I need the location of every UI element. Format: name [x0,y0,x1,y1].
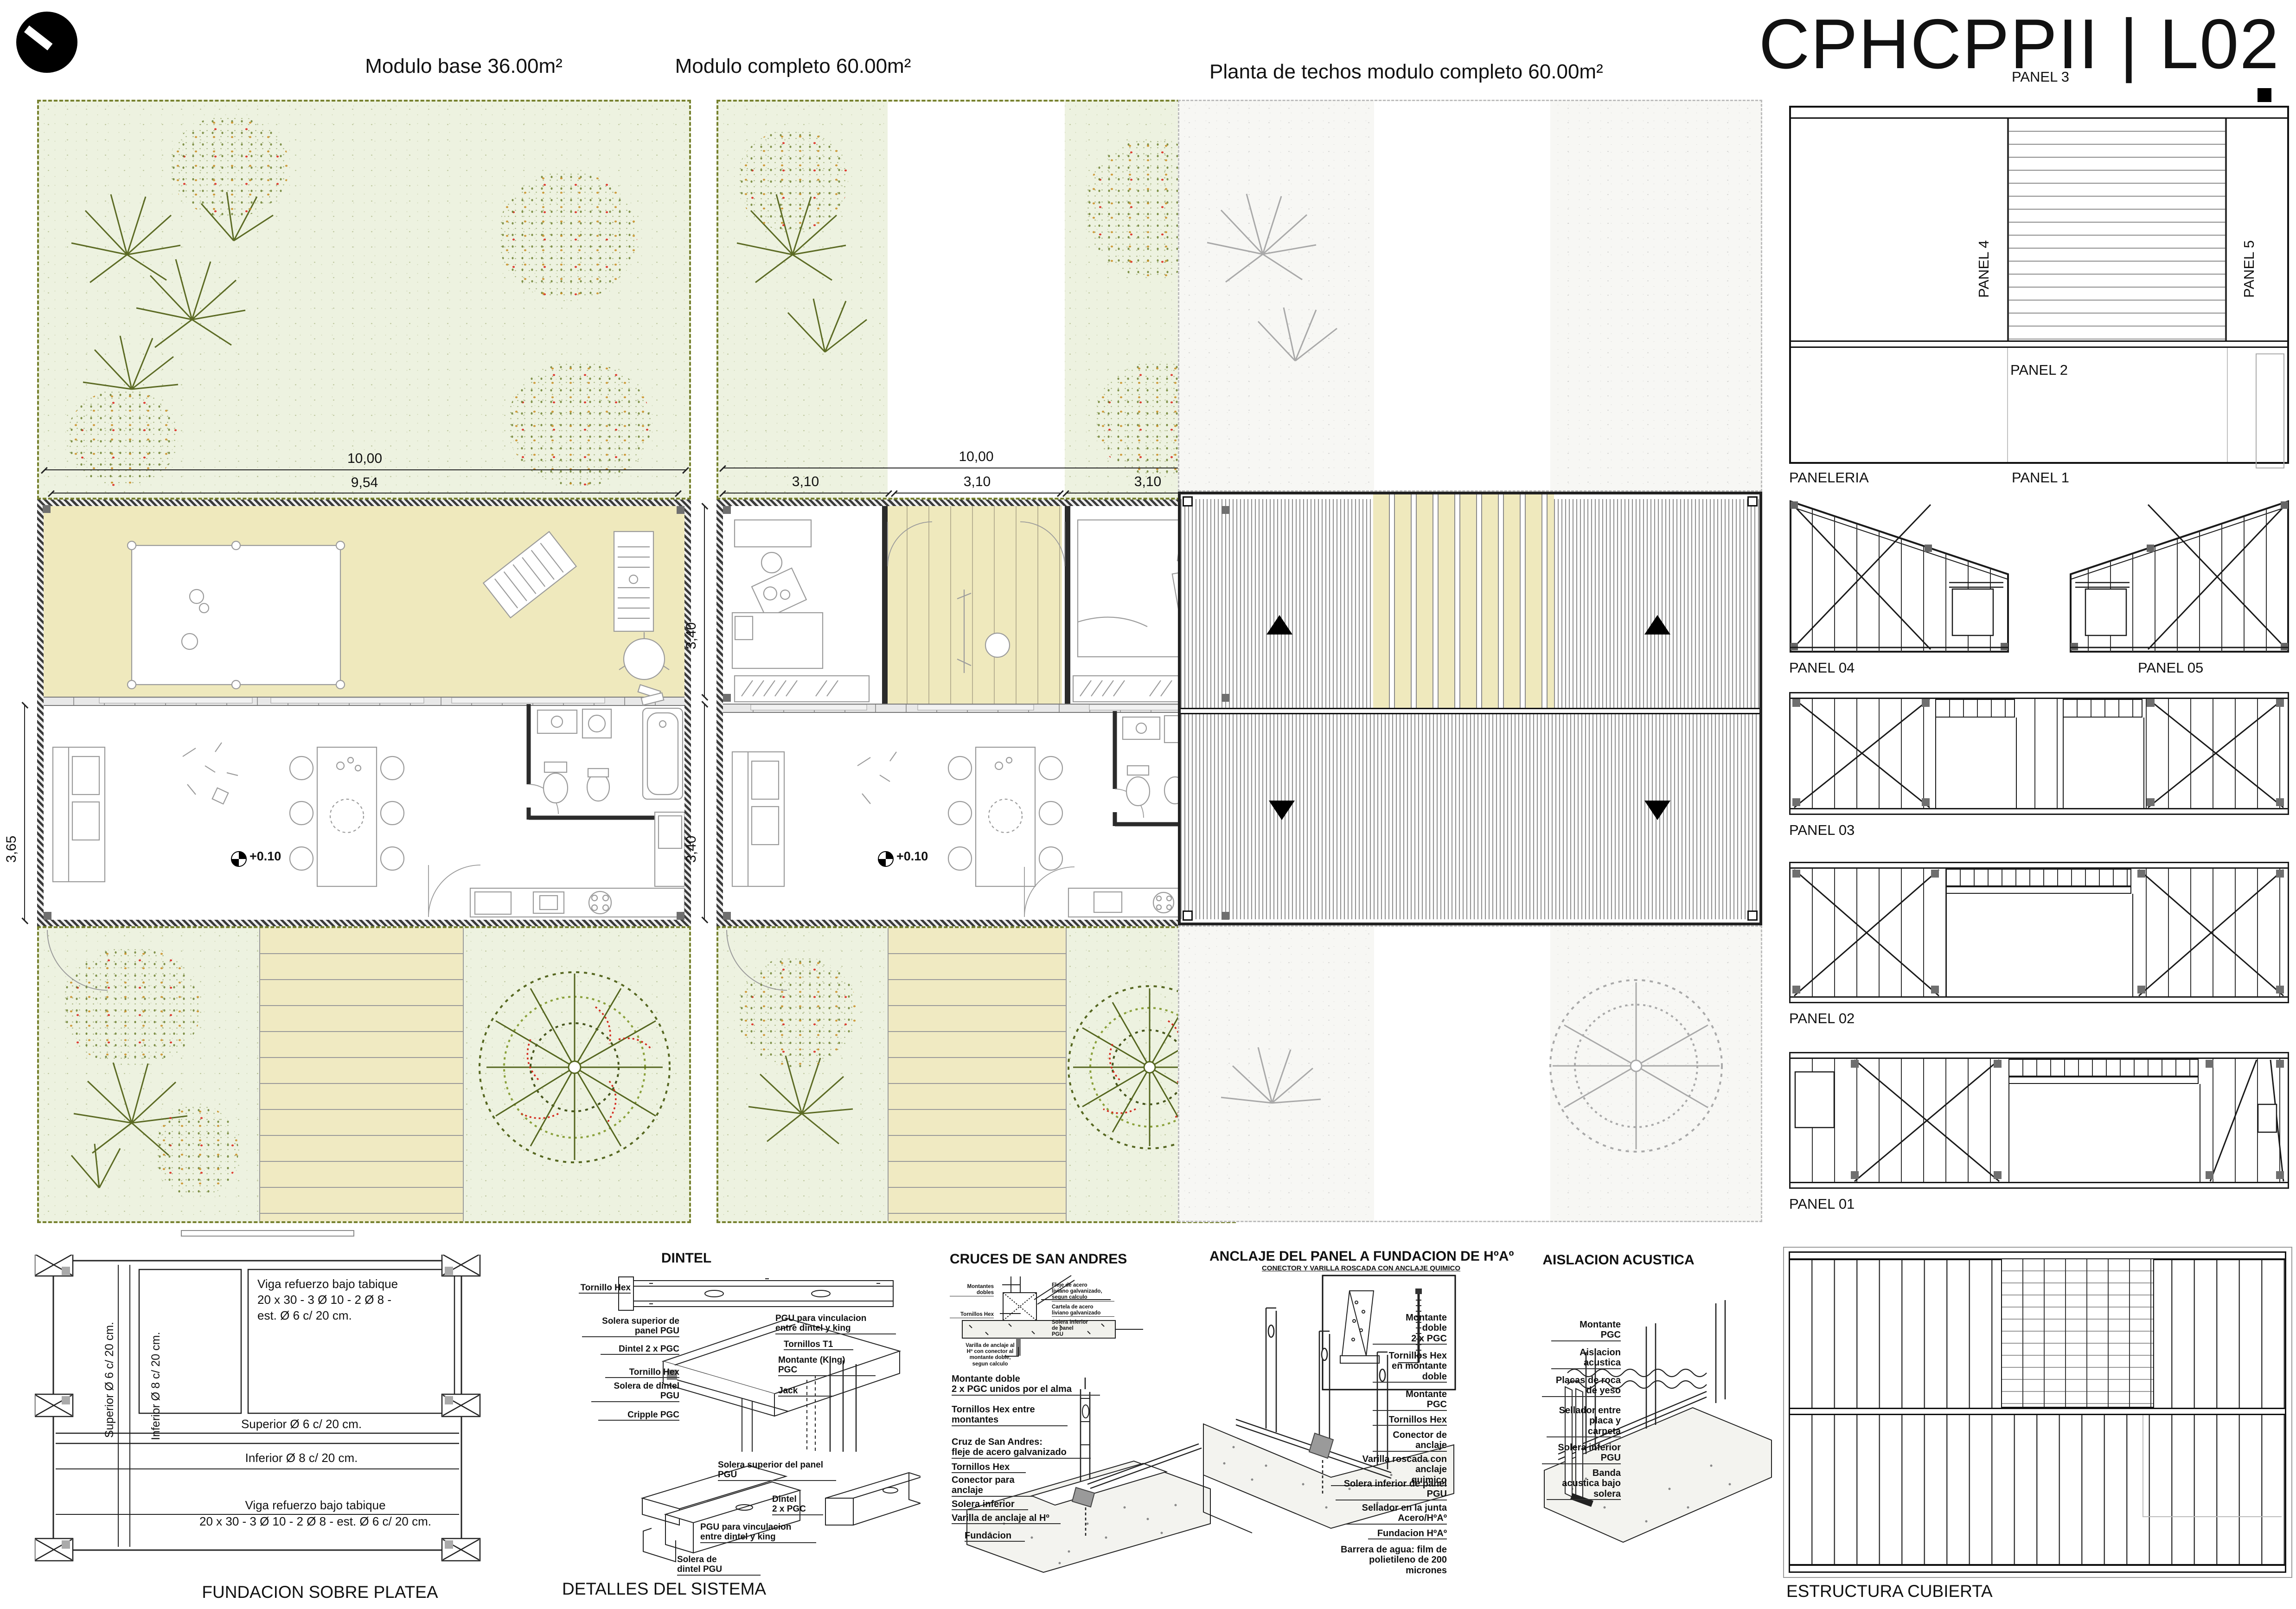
cruces-varilla-label: Varilla de anclaje al Hº [952,1513,1061,1524]
estructura-grid [2001,1258,2154,1408]
slope-up-icon [1644,615,1670,635]
pergola-beams [1373,494,1554,709]
panel04-label: PANEL 04 [1789,660,1855,676]
tree-gray-icon [1179,927,1761,1221]
dintel-cripple-label: Cripple PGC [598,1410,679,1421]
panel01-elevation [1789,1052,2289,1189]
dintel-montante-king-label: Montante (King) PGC [778,1355,876,1376]
anclaje-montante-doble-label: Montante doble 2 x PGC [1373,1313,1447,1345]
dim-10-00: 10,00 [723,449,1230,465]
estructura-joists [1789,1251,2286,1573]
flower-patch-icon [737,129,848,231]
north-marker-icon [2258,88,2271,102]
plan-techos-garden-bottom [1178,925,1762,1222]
roof-ridge [1181,708,1759,714]
fundacion-superior-h: Superior Ø 6 c/ 20 cm. [195,1417,408,1431]
dintel-solera-sup2-label: Solera superior del panel PGU [718,1460,836,1481]
panel02-elevation [1789,862,2289,1003]
cruces-tornillos-montantes-label: Tornillos Hex entre montantes [952,1404,1068,1426]
slope-down-icon [1644,801,1670,820]
furniture-layer [723,506,1229,920]
panel03-elevation [1789,692,2289,815]
fundacion-superior-v: Superior Ø 6 c/ 20 cm. [103,1299,116,1438]
plan-techos-roof [1178,492,1762,925]
deck-step [181,1230,354,1237]
garden-clear-strip [1374,101,1550,490]
panel01-label: PANEL 01 [1789,1196,1855,1212]
plan-base-house: +0.10 [37,500,691,926]
dim-9-54: 9,54 [51,475,678,491]
level-marker-icon [231,851,247,867]
cruces-tornillos-hex-label: Tornillos Hex [952,1462,1026,1473]
dim-10-00: 10,00 [44,451,685,467]
fundacion-inferior-h: Inferior Ø 8 c/ 20 cm. [195,1451,408,1465]
plan-techos-garden-top [1178,100,1762,492]
aislacion-placas-label: Placas de roca de yeso [1542,1375,1621,1397]
anclaje-subtitle: CONECTOR Y VARILLA ROSCADA CON ANCLAJE Q… [1252,1264,1470,1272]
anclaje-sellador-label: Sellador en la junta Acero/HºAº [1345,1503,1447,1525]
plan-completo-garden-top [716,100,1236,500]
roof-ladder-panel [2007,119,2227,340]
dim-3-65: 3,65 [4,770,19,863]
panel1-label: PANEL 1 [1925,469,2156,486]
cruces-fundacion-label: Fundacion [965,1531,1025,1542]
anclaje-solera-label: Solera inferior de panel PGU [1336,1479,1447,1500]
dintel-tornillos-t1-label: Tornillos T1 [784,1340,853,1350]
panel3-label: PANEL 3 [1925,69,2156,85]
level-value: +0.10 [249,849,281,864]
slope-down-icon [1269,801,1295,820]
panel4-label: PANEL 4 [1976,177,1992,298]
dintel-tornillo-top-label: Tornillo Hex [579,1283,631,1294]
aislacion-banda-label: Banda acustica bajo solera [1547,1468,1621,1500]
flower-patch-icon [507,361,651,487]
cruces-solera-inferior-label: Solera inferior [952,1499,1028,1510]
detalles-footer: DETALLES DEL SISTEMA [562,1579,766,1599]
slope-up-icon [1266,615,1292,635]
dim-line-vertical [24,705,25,921]
flower-patch-icon [67,389,178,487]
estructura-title: ESTRUCTURA CUBIERTA [1786,1582,1993,1601]
aislacion-sellador-label: Sellador entre placa y carpeta [1547,1405,1621,1437]
garden-clear-strip [888,102,1065,498]
panel04-elevation [1789,500,2009,653]
dim-line-vertical [704,506,705,697]
aislacion-aislacion-label: Aislacion acustica [1551,1347,1621,1369]
dintel-pgu-vinc2-label: PGU para vinculacion entre dintel y king [700,1522,816,1543]
cruces-title: CRUCES DE SAN ANDRES [950,1251,1127,1267]
panel05-elevation [2069,500,2290,653]
panel05-label: PANEL 05 [2138,660,2203,676]
dintel-pgu-vinc-label: PGU para vinculacion entre dintel y king [775,1314,896,1334]
module-line [2007,348,2008,462]
dim-line [44,469,685,470]
flower-patch-icon [498,171,637,301]
cruces-tornillos-hex-t-label: Tornillos Hex [950,1312,994,1318]
level-value: +0.10 [896,849,928,864]
paneleria-label: PANELERIA [1789,469,1869,486]
aislacion-montante-label: Montante PGC [1551,1320,1621,1341]
top-plate [1791,108,2287,119]
plan-base-garden-bottom [37,926,691,1223]
plan-completo-title: Modulo completo 60.00m² [603,55,983,78]
plants-gray-icon [1179,101,1374,490]
dintel-title: DINTEL [635,1250,737,1266]
dim-line [723,493,889,494]
anclaje-montante-label: Montante PGC [1373,1389,1447,1411]
anclaje-conector-label: Conector de anclaje [1373,1430,1447,1452]
panel5-label: PANEL 5 [2241,177,2258,298]
dim-line [51,493,678,494]
cruces-montantes-dobles-label: Montantes dobles [950,1284,994,1296]
dintel-solera-sup-label: Solera superior de panel PGU [582,1316,679,1337]
dintel-tornillo-label: Tornillo Hex [605,1367,679,1378]
roof-pane [1554,499,1759,708]
cruces-solera-inf-panel-label: Solera inferior de panel PGU [1052,1320,1114,1339]
dintel-solera-dintel2-label: Solera de dintel PGU [677,1555,761,1576]
plan-completo-house: +0.10 [716,500,1236,926]
dintel-jack-label: Jack [778,1386,834,1397]
fundacion-nota-superior: Viga refuerzo bajo tabique 20 x 30 - 3 Ø… [257,1276,452,1323]
panel03-label: PANEL 03 [1789,822,1855,839]
cruces-montante-doble-label: Montante doble 2 x PGC unidos por el alm… [952,1374,1100,1396]
dim-3-40-a: 3,40 [684,557,699,649]
dim-3-40-b: 3,40 [684,770,699,863]
clock-logo-icon [16,12,77,73]
furniture-layer [44,506,684,920]
dim-3-10-a: 3,10 [723,474,889,490]
paneleria-elevation: PANEL 4 PANEL 5 PANEL 2 [1789,106,2289,464]
drawing-sheet: CPHCPPII | L02 Modulo base 36.00m² 10,00… [0,0,2296,1609]
fundacion-nota-inferior: Viga refuerzo bajo tabique 20 x 30 - 3 Ø… [176,1497,454,1530]
stair-inset [2256,353,2284,468]
anclaje-tornillos-label: Tornillos Hex [1373,1415,1447,1426]
level-marker-icon [878,851,894,867]
roof-pane [1181,714,1759,919]
cruces-varilla-nota-label: Varilla de anclaje al Hº con conector al… [955,1343,1025,1367]
estructura-inset [2143,1415,2282,1517]
dim-line-vertical [704,704,705,920]
fundacion-inferior-v: Inferior Ø 8 c/ 20 cm. [149,1301,163,1440]
dintel-dintel1-label: Dintel 2 x PGC [601,1344,679,1355]
plan-base-garden-top [37,100,691,500]
dim-3-10-b: 3,10 [894,474,1060,490]
fundacion-title: FUNDACION SOBRE PLATEA [176,1583,464,1602]
estructura-outer [1783,1247,2292,1578]
anclaje-fundacion-label: Fundacion HºAº [1368,1528,1447,1539]
panel02-label: PANEL 02 [1789,1010,1855,1027]
dintel-dintel2-label: Dintel 2 x PGC [772,1494,823,1515]
anclaje-tornillos-doble-label: Tornillos Hex en montante doble [1373,1351,1447,1383]
cruces-fleje-label: Fleje de acero liviano galvanizado, segu… [1052,1282,1114,1301]
aislacion-title: AISLACION ACUSTICA [1540,1252,1697,1268]
cruces-conector-label: Conector para anclaje [952,1475,1033,1497]
estructura-beam [1790,1408,2285,1415]
flower-patch-icon [155,1104,238,1197]
dim-line [894,493,1060,494]
panel2-label: PANEL 2 [1923,362,2155,378]
roof-pane [1181,499,1373,708]
cruces-cartela-label: Cartela de acero liviano galvanizado [1052,1304,1114,1317]
anclaje-barrera-label: Barrera de agua: film de polietileno de … [1329,1545,1447,1576]
dim-line [723,468,1230,468]
aislacion-solera-label: Solera inferior PGU [1542,1442,1621,1464]
flower-patch-icon [737,956,857,1067]
plan-completo-garden-bottom [716,926,1236,1223]
flower-patch-icon [62,947,201,1067]
dintel-solera-dintel-label: Solera de dintel PGU [591,1381,679,1402]
floor-band [1791,340,2287,348]
anclaje-title: ANCLAJE DEL PANEL A FUNDACION DE HºAº [1209,1249,1514,1264]
flower-patch-icon [169,115,289,218]
module-line [2227,348,2228,462]
cruces-cruz-label: Cruz de San Andres: fleje de acero galva… [952,1437,1091,1459]
plan-techos-title: Planta de techos modulo completo 60.00m² [1209,60,1784,83]
